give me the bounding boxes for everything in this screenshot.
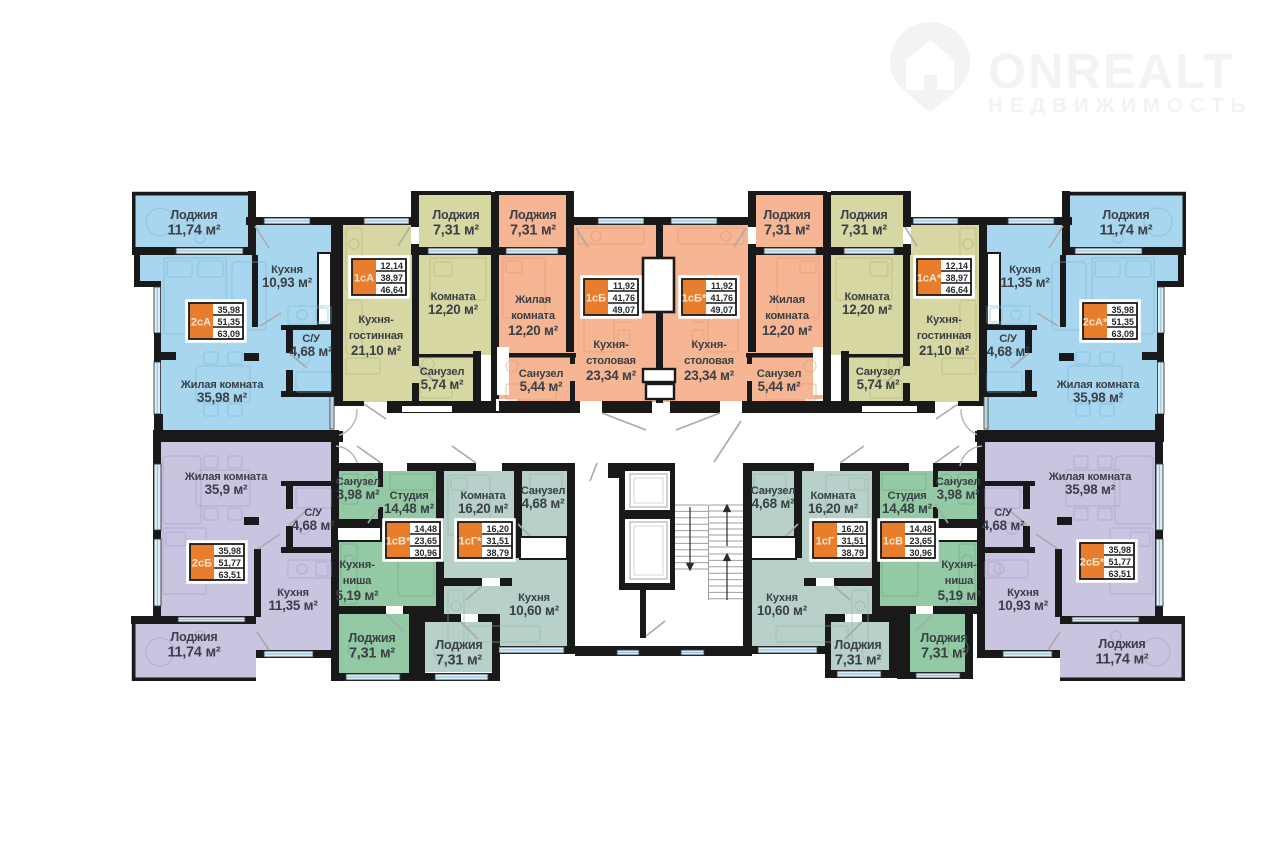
svg-text:Санузел4,68 м²: Санузел4,68 м² xyxy=(521,485,566,511)
svg-text:35,98: 35,98 xyxy=(218,546,241,556)
svg-text:35,98: 35,98 xyxy=(1108,545,1131,555)
svg-text:49,07: 49,07 xyxy=(710,305,733,315)
svg-text:НЕДВИЖИМОСТЬ: НЕДВИЖИМОСТЬ xyxy=(988,94,1252,117)
svg-text:46,64: 46,64 xyxy=(380,285,403,295)
svg-text:1сБ: 1сБ xyxy=(586,293,606,305)
svg-text:63,09: 63,09 xyxy=(217,329,240,339)
svg-text:Комната12,20 м²: Комната12,20 м² xyxy=(842,291,893,317)
svg-text:41,76: 41,76 xyxy=(710,293,733,303)
svg-text:Санузел4,68 м²: Санузел4,68 м² xyxy=(751,485,796,511)
svg-text:1сВ*: 1сВ* xyxy=(386,536,411,548)
svg-text:Комната16,20 м²: Комната16,20 м² xyxy=(458,490,509,516)
svg-text:1сВ: 1сВ xyxy=(883,536,903,548)
svg-text:Комната16,20 м²: Комната16,20 м² xyxy=(808,490,859,516)
svg-text:Лоджия7,31 м²: Лоджия7,31 м² xyxy=(834,638,881,669)
svg-text:1сБ*: 1сБ* xyxy=(682,293,707,305)
svg-text:Лоджия7,31 м²: Лоджия7,31 м² xyxy=(840,208,887,239)
svg-text:2сА*: 2сА* xyxy=(1083,317,1108,329)
svg-text:35,98: 35,98 xyxy=(217,305,240,315)
svg-text:41,76: 41,76 xyxy=(612,293,635,303)
svg-text:38,97: 38,97 xyxy=(380,273,403,283)
svg-text:51,35: 51,35 xyxy=(1111,317,1134,327)
svg-text:51,77: 51,77 xyxy=(218,558,241,568)
svg-text:38,79: 38,79 xyxy=(841,548,864,558)
svg-text:12,14: 12,14 xyxy=(945,261,968,271)
svg-text:23,65: 23,65 xyxy=(414,536,437,546)
svg-text:Санузел3,98 м²: Санузел3,98 м² xyxy=(936,476,981,502)
svg-text:Лоджия11,74 м²: Лоджия11,74 м² xyxy=(167,630,220,661)
svg-text:1сА: 1сА xyxy=(354,273,374,285)
svg-text:Санузел3,98 м²: Санузел3,98 м² xyxy=(336,476,381,502)
svg-text:63,09: 63,09 xyxy=(1111,329,1134,339)
svg-text:Студия14,48 м²: Студия14,48 м² xyxy=(882,490,933,516)
svg-text:30,96: 30,96 xyxy=(909,548,932,558)
svg-text:51,77: 51,77 xyxy=(1108,557,1131,567)
svg-text:Санузел5,74 м²: Санузел5,74 м² xyxy=(420,366,465,392)
svg-text:16,20: 16,20 xyxy=(841,524,864,534)
svg-text:ONREALT: ONREALT xyxy=(988,45,1235,99)
svg-text:14,48: 14,48 xyxy=(414,524,437,534)
svg-text:46,64: 46,64 xyxy=(945,285,968,295)
svg-text:38,79: 38,79 xyxy=(486,548,509,558)
svg-text:23,65: 23,65 xyxy=(909,536,932,546)
svg-text:Лоджия7,31 м²: Лоджия7,31 м² xyxy=(920,631,967,662)
svg-text:16,20: 16,20 xyxy=(486,524,509,534)
svg-text:11,92: 11,92 xyxy=(711,281,733,291)
svg-text:Студия14,48 м²: Студия14,48 м² xyxy=(384,490,435,516)
svg-text:1сГ: 1сГ xyxy=(816,536,835,548)
svg-text:12,14: 12,14 xyxy=(380,261,403,271)
svg-text:Комната12,20 м²: Комната12,20 м² xyxy=(428,291,479,317)
svg-text:11,92: 11,92 xyxy=(613,281,635,291)
svg-text:2сБ*: 2сБ* xyxy=(1080,557,1105,569)
svg-text:51,35: 51,35 xyxy=(217,317,240,327)
svg-text:63,51: 63,51 xyxy=(1108,569,1131,579)
svg-text:2сБ: 2сБ xyxy=(192,558,212,570)
svg-text:1сА*: 1сА* xyxy=(917,273,942,285)
svg-text:63,51: 63,51 xyxy=(218,570,241,580)
svg-text:31,51: 31,51 xyxy=(841,536,864,546)
svg-text:35,98: 35,98 xyxy=(1111,305,1134,315)
svg-text:Лоджия7,31 м²: Лоджия7,31 м² xyxy=(348,631,395,662)
svg-text:Санузел5,74 м²: Санузел5,74 м² xyxy=(856,366,901,392)
svg-text:Лоджия11,74 м²: Лоджия11,74 м² xyxy=(1095,637,1148,668)
svg-text:14,48: 14,48 xyxy=(909,524,932,534)
svg-text:1сГ*: 1сГ* xyxy=(459,536,482,548)
svg-text:Лоджия7,31 м²: Лоджия7,31 м² xyxy=(763,208,810,239)
svg-text:Санузел5,44 м²: Санузел5,44 м² xyxy=(757,368,802,394)
svg-text:Лоджия7,31 м²: Лоджия7,31 м² xyxy=(435,638,482,669)
svg-text:Санузел5,44 м²: Санузел5,44 м² xyxy=(519,368,564,394)
svg-text:2сА: 2сА xyxy=(191,317,211,329)
svg-text:Лоджия7,31 м²: Лоджия7,31 м² xyxy=(509,208,556,239)
svg-text:49,07: 49,07 xyxy=(612,305,635,315)
svg-text:38,97: 38,97 xyxy=(945,273,968,283)
svg-text:Лоджия11,74 м²: Лоджия11,74 м² xyxy=(167,208,220,239)
svg-text:31,51: 31,51 xyxy=(486,536,509,546)
svg-text:Лоджия11,74 м²: Лоджия11,74 м² xyxy=(1099,208,1152,239)
svg-text:30,96: 30,96 xyxy=(414,548,437,558)
svg-text:Лоджия7,31 м²: Лоджия7,31 м² xyxy=(432,208,479,239)
